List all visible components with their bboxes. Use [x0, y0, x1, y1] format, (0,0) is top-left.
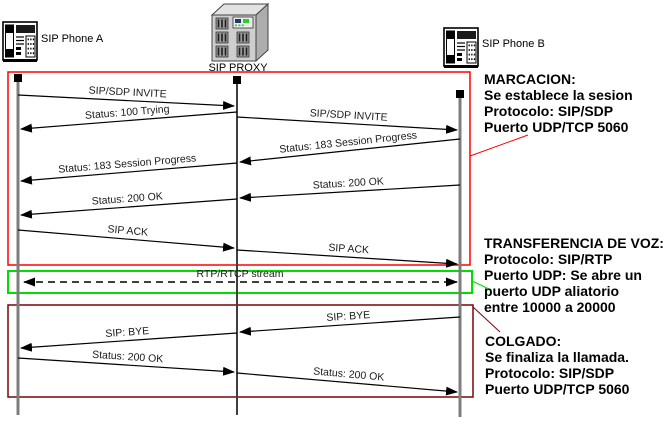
- message-label: Status: 200 OK: [312, 175, 384, 191]
- annotation-marcacion-line: Puerto UDP/TCP 5060: [484, 119, 629, 135]
- message-arrow: Status: 200 OK: [18, 349, 234, 372]
- actor-label-proxy: SIP PROXY: [208, 62, 268, 74]
- message-arrow: SIP ACK: [237, 242, 457, 264]
- message-label: SIP/SDP INVITE: [88, 85, 167, 101]
- annotation-marcacion-line: MARCACION:: [484, 71, 576, 87]
- activation-marker: [14, 74, 22, 82]
- annotation-colgado-line: Protocolo: SIP/SDP: [485, 365, 614, 381]
- message-arrow: SIP: BYE: [240, 309, 460, 332]
- message-label: Status: 183 Session Progress: [279, 129, 418, 155]
- message-arrow: Status: 200 OK: [240, 175, 460, 198]
- annotation-marcacion-line: Se establece la sesion: [484, 87, 633, 103]
- message-arrow: Status: 200 OK: [21, 190, 237, 215]
- activation-marker: [456, 90, 464, 98]
- actor-label-phoneB: SIP Phone B: [482, 38, 545, 50]
- message-label: SIP/SDP INVITE: [309, 107, 388, 124]
- actor-label-phoneA: SIP Phone A: [41, 33, 104, 45]
- message-label: SIP ACK: [107, 223, 149, 238]
- message-label: SIP: BYE: [105, 325, 150, 340]
- diagram-canvas: MARCACION:Se establece la sesionProtocol…: [0, 0, 672, 433]
- message-label: SIP: BYE: [326, 309, 370, 324]
- desk-phone-icon: [3, 22, 37, 62]
- sip-call-flow-diagram: MARCACION:Se establece la sesionProtocol…: [0, 0, 672, 433]
- annotation-colgado-line: Se finaliza la llamada.: [485, 349, 629, 365]
- section-box-colgado: [8, 305, 473, 397]
- message-arrow: SIP: BYE: [21, 325, 237, 348]
- leader-line-marcacion: [470, 135, 528, 156]
- annotation-transferencia-voz-line: Protocolo: SIP/RTP: [484, 251, 612, 267]
- message-arrow: Status: 200 OK: [237, 365, 457, 392]
- server-icon: [212, 4, 268, 61]
- message-arrow: SIP/SDP INVITE: [237, 107, 457, 130]
- message-arrow: Status: 183 Session Progress: [21, 152, 237, 181]
- message-label: SIP ACK: [328, 242, 369, 257]
- desk-phone-icon: [444, 28, 478, 68]
- annotation-colgado-line: COLGADO:: [485, 333, 561, 349]
- message-arrow: Status: 100 Trying: [21, 103, 237, 129]
- activation-marker: [233, 76, 241, 84]
- annotation-transferencia-voz-line: Puerto UDP: Se abre un: [484, 267, 642, 283]
- message-arrow: SIP ACK: [18, 223, 234, 248]
- message-arrow: Status: 183 Session Progress: [240, 129, 460, 162]
- annotation-transferencia-voz-line: entre 10000 a 20000: [484, 299, 616, 315]
- annotation-transferencia-voz-line: TRANSFERENCIA DE VOZ:: [484, 235, 664, 251]
- message-arrow: SIP/SDP INVITE: [18, 85, 234, 106]
- message-label: RTP/RTCP stream: [197, 268, 284, 280]
- message-label: Status: 200 OK: [92, 349, 164, 366]
- annotation-transferencia-voz-line: puerto UDP aliatorio: [484, 283, 619, 299]
- actor-phoneA: SIP Phone A: [3, 22, 104, 415]
- actor-proxy: SIP PROXY: [208, 4, 268, 415]
- message-label: Status: 100 Trying: [85, 103, 170, 122]
- annotation-colgado-line: Puerto UDP/TCP 5060: [485, 381, 630, 397]
- annotation-marcacion-line: Protocolo: SIP/SDP: [484, 103, 613, 119]
